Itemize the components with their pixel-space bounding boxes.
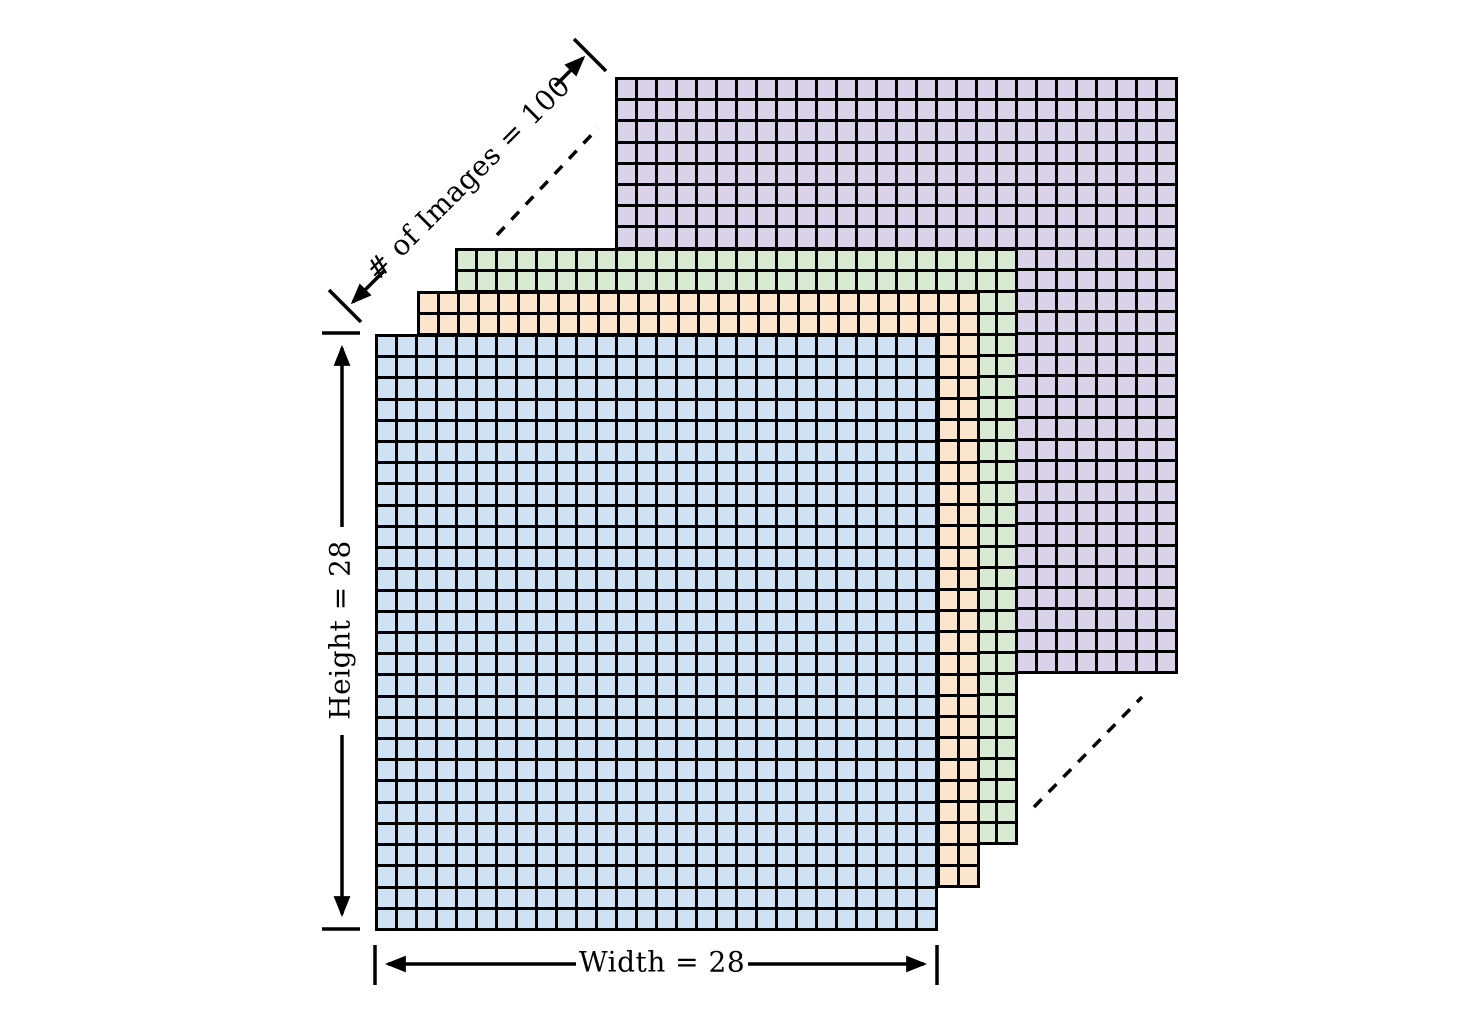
pixel-cell — [978, 739, 995, 757]
pixel-cell — [858, 507, 875, 525]
pixel-cell — [838, 889, 855, 907]
pixel-cell — [998, 463, 1015, 481]
pixel-cell — [1078, 292, 1095, 310]
pixel-cell — [498, 379, 515, 397]
pixel-cell — [638, 251, 655, 269]
pixel-cell — [458, 889, 475, 907]
pixel-cell — [638, 101, 655, 119]
pixel-cell — [898, 613, 915, 631]
pixel-cell — [578, 570, 595, 588]
pixel-cell — [438, 592, 455, 610]
pixel-cell — [438, 676, 455, 694]
pixel-cell — [378, 676, 395, 694]
pixel-cell — [898, 464, 915, 482]
pixel-cell — [738, 655, 755, 673]
pixel-cell — [1098, 165, 1115, 183]
pixel-cell — [538, 337, 555, 355]
pixel-cell — [898, 144, 915, 162]
pixel-cell — [738, 379, 755, 397]
pixel-cell — [818, 272, 835, 290]
pixel-cell — [798, 507, 815, 525]
pixel-cell — [1058, 525, 1075, 543]
pixel-cell — [818, 101, 835, 119]
pixel-cell — [1118, 398, 1135, 416]
pixel-cell — [698, 228, 715, 246]
pixel-cell — [1158, 610, 1175, 628]
pixel-cell — [978, 675, 995, 693]
pixel-cell — [978, 760, 995, 778]
pixel-cell — [1018, 398, 1035, 416]
pixel-cell — [1038, 610, 1055, 628]
pixel-cell — [420, 315, 437, 333]
pixel-cell — [678, 867, 695, 885]
pixel-cell — [940, 612, 957, 630]
pixel-cell — [758, 825, 775, 843]
pixel-cell — [998, 654, 1015, 672]
pixel-cell — [698, 613, 715, 631]
pixel-cell — [438, 698, 455, 716]
pixel-cell — [1058, 610, 1075, 628]
pixel-cell — [738, 186, 755, 204]
pixel-cell — [638, 719, 655, 737]
pixel-cell — [858, 676, 875, 694]
pixel-cell — [538, 740, 555, 758]
pixel-cell — [838, 464, 855, 482]
pixel-cell — [538, 464, 555, 482]
pixel-cell — [940, 442, 957, 460]
pixel-cell — [538, 846, 555, 864]
pixel-cell — [398, 507, 415, 525]
pixel-cell — [1058, 186, 1075, 204]
pixel-cell — [758, 422, 775, 440]
pixel-cell — [498, 443, 515, 461]
pixel-cell — [798, 228, 815, 246]
pixel-cell — [558, 464, 575, 482]
pixel-cell — [758, 613, 775, 631]
pixel-cell — [818, 80, 835, 98]
pixel-cell — [1158, 313, 1175, 331]
pixel-cell — [1098, 462, 1115, 480]
pixel-cell — [778, 144, 795, 162]
pixel-cell — [758, 846, 775, 864]
pixel-cell — [918, 740, 935, 758]
pixel-cell — [578, 889, 595, 907]
pixel-cell — [1138, 568, 1155, 586]
pixel-cell — [758, 782, 775, 800]
pixel-cell — [1158, 398, 1175, 416]
pixel-cell — [1118, 356, 1135, 374]
pixel-cell — [618, 740, 635, 758]
pixel-cell — [378, 698, 395, 716]
pixel-cell — [558, 272, 575, 290]
pixel-cell — [578, 592, 595, 610]
pixel-cell — [960, 442, 977, 460]
pixel-cell — [618, 401, 635, 419]
pixel-cell — [1018, 80, 1035, 98]
pixel-cell — [398, 910, 415, 928]
pixel-cell — [1118, 610, 1135, 628]
pixel-cell — [438, 804, 455, 822]
pixel-cell — [1038, 122, 1055, 140]
pixel-cell — [498, 570, 515, 588]
pixel-cell — [1118, 80, 1135, 98]
pixel-cell — [498, 613, 515, 631]
pixel-cell — [1078, 144, 1095, 162]
pixel-cell — [998, 739, 1015, 757]
pixel-cell — [778, 740, 795, 758]
pixel-cell — [918, 485, 935, 503]
pixel-cell — [960, 655, 977, 673]
pixel-cell — [538, 782, 555, 800]
pixel-cell — [478, 698, 495, 716]
pixel-cell — [858, 485, 875, 503]
pixel-cell — [1138, 483, 1155, 501]
pixel-cell — [698, 422, 715, 440]
pixel-cell — [838, 613, 855, 631]
pixel-cell — [478, 337, 495, 355]
pixel-cell — [1138, 122, 1155, 140]
pixel-cell — [678, 464, 695, 482]
pixel-cell — [1038, 377, 1055, 395]
pixel-cell — [638, 889, 655, 907]
pixel-cell — [778, 358, 795, 376]
pixel-cell — [578, 272, 595, 290]
pixel-cell — [998, 101, 1015, 119]
pixel-cell — [758, 272, 775, 290]
pixel-cell — [838, 251, 855, 269]
pixel-cell — [918, 101, 935, 119]
pixel-cell — [738, 207, 755, 225]
pixel-cell — [1138, 101, 1155, 119]
pixel-cell — [838, 443, 855, 461]
pixel-grid-image-1-front — [375, 334, 938, 931]
pixel-cell — [978, 484, 995, 502]
pixel-cell — [798, 272, 815, 290]
pixel-cell — [1078, 186, 1095, 204]
pixel-cell — [698, 867, 715, 885]
pixel-cell — [858, 825, 875, 843]
pixel-cell — [838, 507, 855, 525]
pixel-cell — [1038, 144, 1055, 162]
pixel-cell — [818, 251, 835, 269]
pixel-cell — [880, 294, 897, 312]
pixel-cell — [1098, 101, 1115, 119]
pixel-cell — [1158, 377, 1175, 395]
pixel-cell — [518, 507, 535, 525]
pixel-cell — [1078, 462, 1095, 480]
pixel-cell — [818, 122, 835, 140]
pixel-cell — [1138, 165, 1155, 183]
pixel-cell — [960, 358, 977, 376]
pixel-cell — [778, 761, 795, 779]
pixel-cell — [458, 676, 475, 694]
pixel-cell — [878, 228, 895, 246]
pixel-cell — [1018, 589, 1035, 607]
pixel-cell — [618, 867, 635, 885]
pixel-cell — [738, 549, 755, 567]
pixel-cell — [1018, 186, 1035, 204]
pixel-cell — [878, 80, 895, 98]
pixel-cell — [1018, 610, 1035, 628]
pixel-cell — [778, 464, 795, 482]
pixel-cell — [518, 464, 535, 482]
pixel-cell — [878, 549, 895, 567]
pixel-cell — [898, 528, 915, 546]
pixel-cell — [638, 358, 655, 376]
pixel-cell — [1098, 186, 1115, 204]
pixel-cell — [800, 315, 817, 333]
pixel-cell — [1158, 504, 1175, 522]
pixel-cell — [660, 315, 677, 333]
pixel-cell — [1158, 525, 1175, 543]
pixel-cell — [818, 804, 835, 822]
pixel-cell — [818, 228, 835, 246]
pixel-cell — [458, 507, 475, 525]
pixel-cell — [738, 782, 755, 800]
pixel-cell — [638, 228, 655, 246]
pixel-cell — [960, 761, 977, 779]
pixel-cell — [658, 228, 675, 246]
pixel-cell — [1038, 589, 1055, 607]
pixel-cell — [558, 676, 575, 694]
pixel-cell — [600, 294, 617, 312]
pixel-cell — [978, 80, 995, 98]
pixel-cell — [798, 889, 815, 907]
pixel-cell — [838, 401, 855, 419]
pixel-cell — [798, 207, 815, 225]
pixel-cell — [1018, 250, 1035, 268]
pixel-cell — [498, 507, 515, 525]
pixel-cell — [718, 186, 735, 204]
pixel-cell — [818, 698, 835, 716]
pixel-cell — [838, 634, 855, 652]
pixel-cell — [538, 443, 555, 461]
pixel-cell — [958, 207, 975, 225]
pixel-cell — [918, 825, 935, 843]
pixel-cell — [1058, 568, 1075, 586]
pixel-cell — [578, 676, 595, 694]
pixel-cell — [438, 337, 455, 355]
pixel-cell — [998, 207, 1015, 225]
pixel-cell — [838, 165, 855, 183]
pixel-cell — [738, 144, 755, 162]
pixel-cell — [518, 719, 535, 737]
pixel-cell — [658, 122, 675, 140]
pixel-cell — [838, 358, 855, 376]
pixel-cell — [418, 782, 435, 800]
pixel-cell — [1138, 462, 1155, 480]
pixel-cell — [618, 782, 635, 800]
pixel-cell — [960, 867, 977, 885]
pixel-cell — [658, 186, 675, 204]
pixel-cell — [1038, 313, 1055, 331]
pixel-cell — [678, 740, 695, 758]
pixel-cell — [698, 122, 715, 140]
pixel-cell — [498, 485, 515, 503]
pixel-cell — [598, 910, 615, 928]
pixel-cell — [998, 378, 1015, 396]
pixel-cell — [478, 272, 495, 290]
pixel-cell — [878, 401, 895, 419]
pixel-cell — [538, 761, 555, 779]
pixel-cell — [1058, 419, 1075, 437]
pixel-cell — [640, 294, 657, 312]
pixel-cell — [778, 846, 795, 864]
pixel-cell — [578, 782, 595, 800]
pixel-cell — [578, 698, 595, 716]
pixel-cell — [978, 654, 995, 672]
pixel-cell — [678, 570, 695, 588]
pixel-cell — [978, 612, 995, 630]
pixel-cell — [658, 528, 675, 546]
pixel-cell — [698, 676, 715, 694]
pixel-cell — [858, 528, 875, 546]
pixel-cell — [618, 804, 635, 822]
pixel-cell — [878, 676, 895, 694]
pixel-cell — [598, 422, 615, 440]
pixel-cell — [940, 761, 957, 779]
pixel-cell — [658, 337, 675, 355]
pixel-cell — [598, 401, 615, 419]
pixel-cell — [1158, 589, 1175, 607]
pixel-cell — [798, 592, 815, 610]
pixel-cell — [1018, 228, 1035, 246]
pixel-cell — [1098, 504, 1115, 522]
pixel-cell — [658, 207, 675, 225]
pixel-cell — [998, 399, 1015, 417]
pixel-cell — [1078, 483, 1095, 501]
pixel-cell — [1138, 228, 1155, 246]
pixel-cell — [998, 442, 1015, 460]
pixel-cell — [698, 825, 715, 843]
pixel-cell — [918, 804, 935, 822]
pixel-cell — [858, 889, 875, 907]
pixel-cell — [778, 889, 795, 907]
pixel-cell — [1118, 250, 1135, 268]
pixel-cell — [578, 507, 595, 525]
pixel-cell — [558, 592, 575, 610]
pixel-cell — [758, 207, 775, 225]
pixel-cell — [1158, 250, 1175, 268]
pixel-cell — [1138, 207, 1155, 225]
pixel-cell — [878, 846, 895, 864]
pixel-cell — [478, 634, 495, 652]
pixel-cell — [858, 804, 875, 822]
pixel-cell — [378, 422, 395, 440]
pixel-cell — [918, 698, 935, 716]
pixel-cell — [458, 464, 475, 482]
pixel-cell — [678, 804, 695, 822]
pixel-cell — [438, 634, 455, 652]
pixel-cell — [758, 101, 775, 119]
pixel-cell — [378, 804, 395, 822]
pixel-cell — [1098, 525, 1115, 543]
pixel-cell — [798, 165, 815, 183]
pixel-cell — [1058, 122, 1075, 140]
pixel-cell — [778, 401, 795, 419]
pixel-cell — [638, 867, 655, 885]
pixel-cell — [578, 719, 595, 737]
pixel-cell — [658, 889, 675, 907]
pixel-cell — [958, 251, 975, 269]
pixel-cell — [478, 464, 495, 482]
pixel-cell — [918, 889, 935, 907]
pixel-cell — [798, 528, 815, 546]
pixel-cell — [798, 122, 815, 140]
pixel-cell — [858, 186, 875, 204]
pixel-cell — [960, 633, 977, 651]
pixel-cell — [1058, 504, 1075, 522]
pixel-cell — [878, 698, 895, 716]
pixel-cell — [538, 379, 555, 397]
pixel-cell — [478, 910, 495, 928]
pixel-cell — [1098, 610, 1115, 628]
pixel-cell — [1118, 144, 1135, 162]
pixel-cell — [1018, 313, 1035, 331]
pixel-cell — [838, 825, 855, 843]
pixel-cell — [558, 358, 575, 376]
pixel-cell — [818, 761, 835, 779]
pixel-cell — [1038, 250, 1055, 268]
pixel-cell — [1158, 653, 1175, 671]
pixel-cell — [758, 228, 775, 246]
pixel-cell — [938, 251, 955, 269]
pixel-cell — [680, 315, 697, 333]
pixel-cell — [478, 528, 495, 546]
pixel-cell — [718, 165, 735, 183]
pixel-cell — [898, 228, 915, 246]
pixel-cell — [898, 782, 915, 800]
pixel-cell — [898, 592, 915, 610]
pixel-cell — [658, 80, 675, 98]
pixel-cell — [678, 379, 695, 397]
pixel-cell — [398, 549, 415, 567]
pixel-cell — [738, 804, 755, 822]
pixel-cell — [418, 761, 435, 779]
pixel-cell — [378, 634, 395, 652]
pixel-cell — [678, 655, 695, 673]
pixel-cell — [698, 485, 715, 503]
pixel-cell — [558, 825, 575, 843]
pixel-cell — [998, 527, 1015, 545]
pixel-cell — [778, 507, 795, 525]
pixel-cell — [458, 867, 475, 885]
pixel-cell — [778, 251, 795, 269]
pixel-cell — [878, 825, 895, 843]
pixel-cell — [1118, 313, 1135, 331]
pixel-cell — [858, 207, 875, 225]
pixel-cell — [398, 422, 415, 440]
pixel-cell — [698, 889, 715, 907]
pixel-cell — [740, 315, 757, 333]
pixel-cell — [518, 379, 535, 397]
pixel-cell — [498, 422, 515, 440]
pixel-cell — [418, 655, 435, 673]
pixel-cell — [778, 80, 795, 98]
pixel-cell — [1118, 441, 1135, 459]
pixel-cell — [538, 655, 555, 673]
pixel-cell — [458, 485, 475, 503]
pixel-cell — [918, 165, 935, 183]
pixel-cell — [858, 401, 875, 419]
pixel-cell — [960, 549, 977, 567]
pixel-cell — [618, 655, 635, 673]
pixel-cell — [1098, 207, 1115, 225]
pixel-cell — [398, 867, 415, 885]
pixel-cell — [740, 294, 757, 312]
pixel-cell — [1098, 653, 1115, 671]
pixel-cell — [838, 528, 855, 546]
